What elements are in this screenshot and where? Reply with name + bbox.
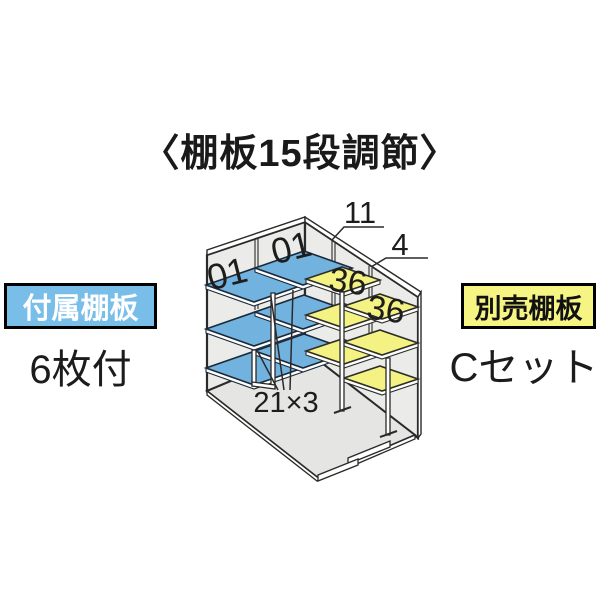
page: 〈棚板15段調節〉 xyxy=(0,0,600,600)
part-4: 4 xyxy=(391,227,408,262)
included-shelf-count: 6枚付 xyxy=(4,337,157,395)
part-11: 11 xyxy=(344,195,376,230)
included-shelf-badge: 付属棚板 xyxy=(4,283,157,329)
part-36-lower: 36 xyxy=(364,289,407,332)
support-post xyxy=(386,358,390,435)
right-wall-side-edge xyxy=(418,292,421,438)
support-post xyxy=(252,350,256,386)
support-post xyxy=(340,292,344,411)
optional-shelf-badge: 別売棚板 xyxy=(461,283,596,329)
optional-shelf-set: Cセット xyxy=(446,335,600,393)
part-21x3: 21×3 xyxy=(253,387,318,419)
part-36-upper: 36 xyxy=(326,261,369,304)
